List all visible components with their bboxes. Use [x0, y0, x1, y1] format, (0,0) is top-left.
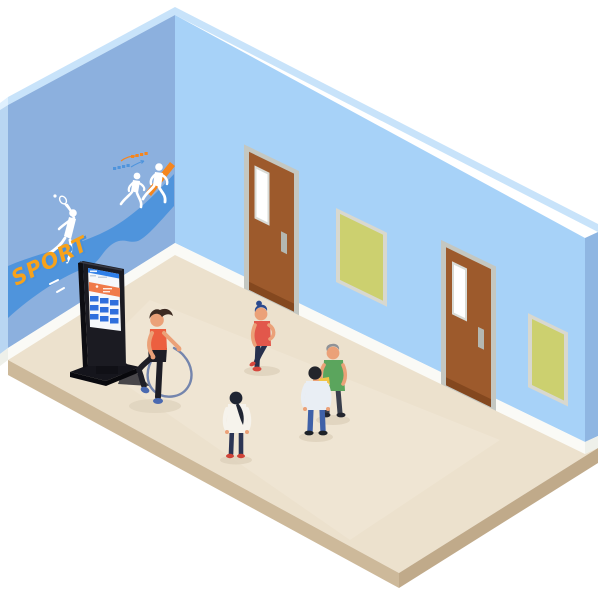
hand — [151, 355, 156, 360]
head — [255, 308, 268, 321]
head-hair-back — [308, 366, 321, 379]
hair-bun — [256, 301, 262, 307]
shoe — [253, 367, 262, 372]
person-shadow — [220, 456, 252, 465]
shoe — [153, 398, 163, 404]
runner-front-head — [155, 163, 163, 171]
shoe — [304, 431, 313, 436]
standing-leg — [158, 358, 160, 397]
hand — [326, 407, 330, 411]
hand — [225, 430, 229, 434]
scene-illustration: SPORT SPORT — [0, 0, 600, 600]
hand — [303, 407, 307, 411]
kiosk-header-text — [90, 271, 97, 273]
shoe — [226, 454, 234, 458]
person-shadow — [299, 432, 333, 442]
torso — [226, 404, 248, 433]
person-shadow — [244, 366, 280, 376]
hand — [177, 347, 182, 352]
head-hair-back — [230, 392, 243, 405]
door-1-window — [257, 169, 268, 222]
shuttlecock — [53, 194, 56, 197]
door-1-push-plate — [281, 231, 287, 254]
shoe — [237, 454, 245, 458]
hand — [245, 430, 249, 434]
door-2-push-plate — [478, 327, 484, 350]
right-wall-edge-face — [585, 232, 598, 442]
head — [327, 347, 340, 360]
shoe — [337, 413, 346, 418]
left-wall-edge-face — [0, 105, 8, 354]
runner-rear-head — [134, 173, 141, 180]
shoe — [318, 431, 327, 436]
door-2-window — [454, 265, 465, 318]
kiosk-banner-figure — [96, 285, 99, 288]
kiosk-tiles — [90, 296, 119, 324]
